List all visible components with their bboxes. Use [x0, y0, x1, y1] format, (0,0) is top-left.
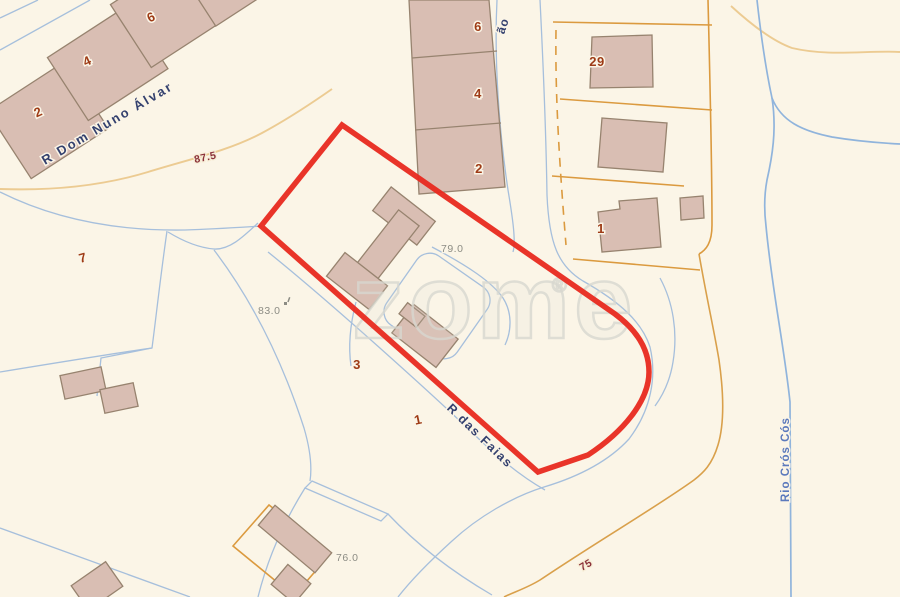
map-viewport[interactable]: zome ® R Dom Nuno Álvar ão R das Faias R…: [0, 0, 900, 597]
house-number-6-strip: 6: [474, 19, 482, 34]
house-number-3: 3: [353, 357, 361, 372]
spot-elevation-79: 79.0: [441, 243, 463, 255]
map-canvas[interactable]: zome ® R Dom Nuno Álvar ão R das Faias R…: [0, 0, 900, 597]
rowhouse-strip: [409, 0, 505, 194]
house-number-2-strip: 2: [475, 161, 483, 176]
house-number-29: 29: [589, 54, 604, 69]
river-label-rio-cros-cos: Rio Crós Cós: [780, 417, 792, 502]
house-number-1-right: 1: [597, 221, 605, 236]
house-number-4-strip: 4: [474, 86, 482, 101]
building-annex: [680, 196, 704, 220]
spot-elevation-marker: [284, 302, 287, 305]
spot-elevation-83: 83.0: [258, 305, 280, 317]
spot-elevation-76: 76.0: [336, 552, 358, 564]
building-middle-right: [598, 118, 667, 172]
